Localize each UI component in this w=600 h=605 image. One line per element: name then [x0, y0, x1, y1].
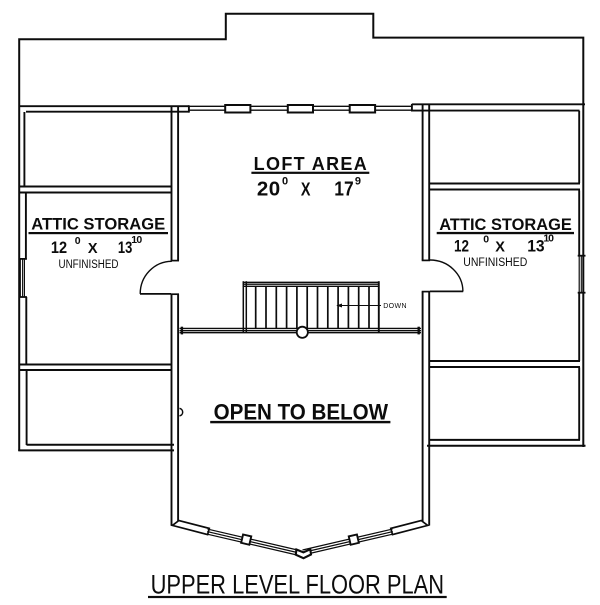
- svg-text:0: 0: [75, 235, 81, 247]
- svg-text:17: 17: [334, 177, 353, 200]
- svg-text:UNFINISHED: UNFINISHED: [59, 259, 119, 271]
- svg-text:12: 12: [51, 238, 67, 257]
- svg-text:0: 0: [483, 233, 489, 245]
- svg-text:0: 0: [282, 175, 288, 187]
- svg-text:10: 10: [131, 234, 142, 246]
- svg-text:13: 13: [527, 236, 544, 255]
- svg-text:X: X: [88, 241, 98, 257]
- svg-text:12: 12: [454, 236, 469, 255]
- svg-text:UNFINISHED: UNFINISHED: [463, 257, 527, 269]
- svg-text:DOWN: DOWN: [383, 303, 406, 310]
- svg-text:X: X: [301, 179, 311, 199]
- svg-text:OPEN TO BELOW: OPEN TO BELOW: [214, 399, 389, 424]
- svg-text:X: X: [495, 239, 505, 255]
- svg-text:13: 13: [118, 238, 132, 257]
- svg-text:ATTIC STORAGE: ATTIC STORAGE: [439, 215, 572, 234]
- svg-text:UPPER LEVEL FLOOR PLAN: UPPER LEVEL FLOOR PLAN: [151, 569, 445, 599]
- svg-text:9: 9: [355, 175, 361, 187]
- svg-text:LOFT AREA: LOFT AREA: [254, 154, 367, 174]
- svg-text:20: 20: [257, 177, 280, 200]
- svg-text:ATTIC STORAGE: ATTIC STORAGE: [31, 215, 165, 234]
- svg-text:10: 10: [543, 233, 554, 245]
